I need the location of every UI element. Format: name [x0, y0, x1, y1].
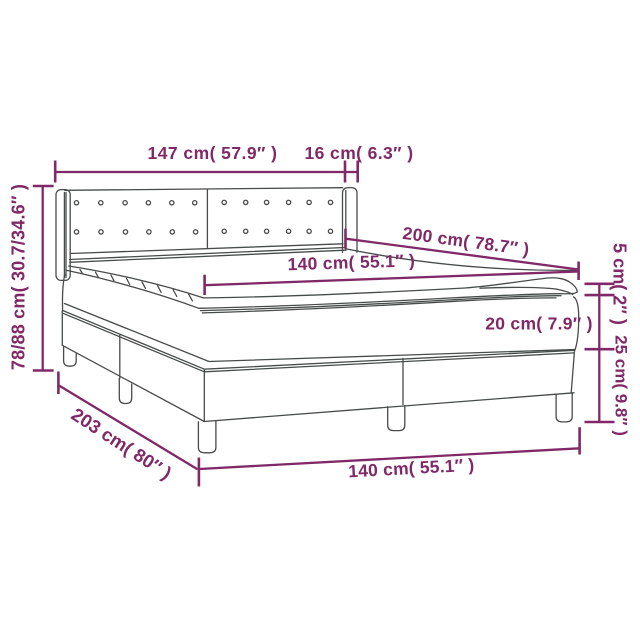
svg-text:5 cm( 2″ ): 5 cm( 2″ ) — [610, 243, 630, 325]
svg-text:16 cm( 6.3″ ): 16 cm( 6.3″ ) — [305, 143, 414, 163]
svg-text:78/88 cm( 30.7/34.6″ ): 78/88 cm( 30.7/34.6″ ) — [9, 184, 29, 370]
svg-text:140 cm( 55.1″ ): 140 cm( 55.1″ ) — [287, 250, 415, 274]
svg-text:25 cm( 9.8″ ): 25 cm( 9.8″ ) — [612, 335, 631, 436]
svg-text:20 cm( 7.9″ ): 20 cm( 7.9″ ) — [485, 313, 593, 333]
svg-text:147 cm( 57.9″ ): 147 cm( 57.9″ ) — [148, 143, 278, 163]
